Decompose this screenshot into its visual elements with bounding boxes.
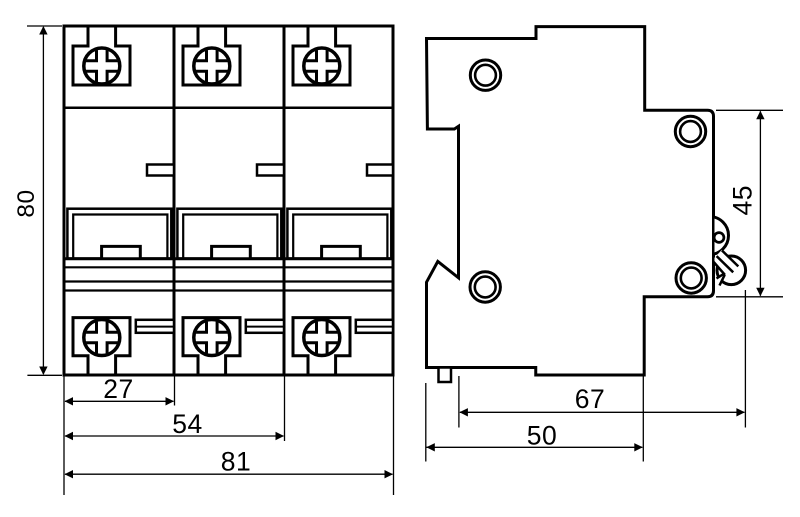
svg-text:27: 27 <box>103 374 133 404</box>
svg-text:54: 54 <box>172 409 202 439</box>
svg-text:50: 50 <box>527 421 557 451</box>
svg-text:81: 81 <box>221 446 251 476</box>
svg-text:67: 67 <box>575 384 605 414</box>
svg-text:80: 80 <box>13 189 40 217</box>
svg-text:45: 45 <box>727 185 757 215</box>
